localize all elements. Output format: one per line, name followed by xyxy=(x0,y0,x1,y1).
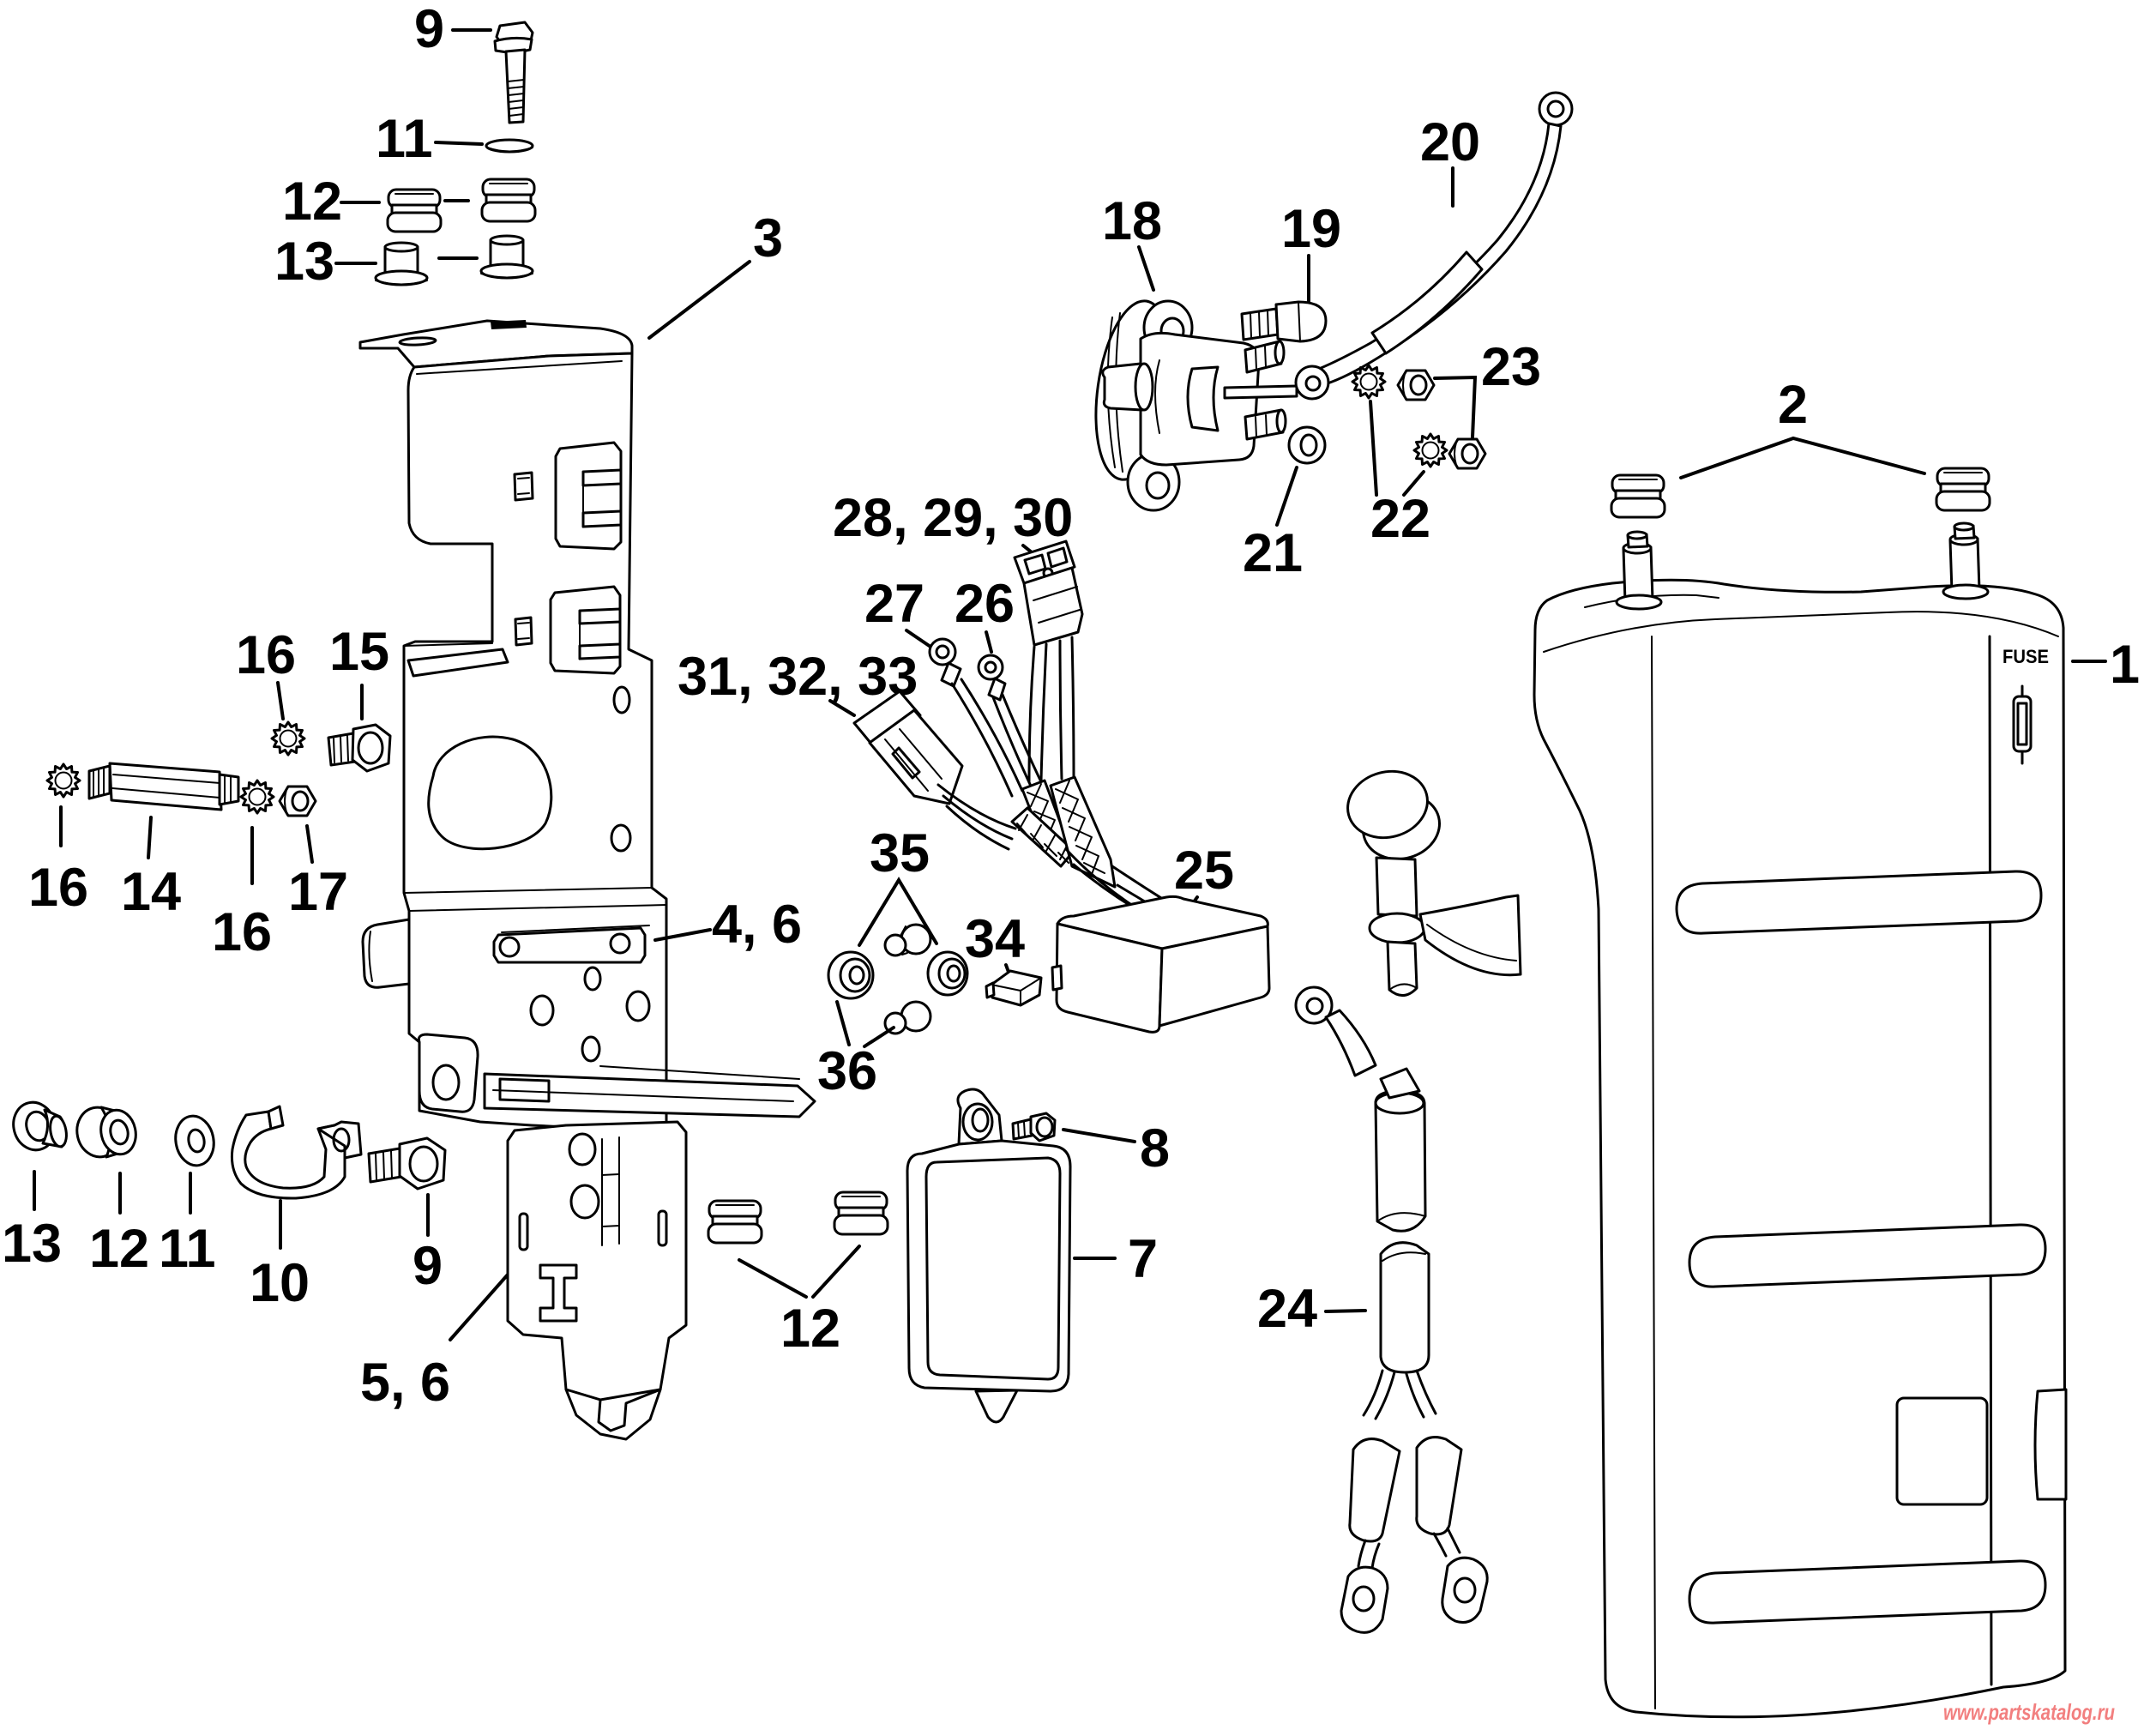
svg-text:12: 12 xyxy=(89,1219,149,1279)
svg-text:10: 10 xyxy=(250,1253,310,1313)
svg-text:13: 13 xyxy=(274,232,334,292)
svg-text:FUSE: FUSE xyxy=(2002,646,2049,667)
svg-text:20: 20 xyxy=(1420,112,1480,172)
svg-text:3: 3 xyxy=(753,208,783,268)
svg-text:8: 8 xyxy=(1140,1118,1170,1178)
svg-text:1: 1 xyxy=(2110,635,2140,695)
svg-text:12: 12 xyxy=(282,172,342,232)
svg-text:www.partskatalog.ru: www.partskatalog.ru xyxy=(1943,1699,2115,1725)
svg-text:35: 35 xyxy=(870,823,930,883)
svg-text:34: 34 xyxy=(965,909,1025,969)
svg-text:16: 16 xyxy=(236,625,296,685)
svg-text:26: 26 xyxy=(955,574,1015,634)
svg-text:18: 18 xyxy=(1102,191,1162,251)
svg-text:28, 29, 30: 28, 29, 30 xyxy=(833,488,1073,548)
svg-text:19: 19 xyxy=(1281,199,1341,259)
svg-text:17: 17 xyxy=(288,862,348,922)
svg-text:21: 21 xyxy=(1243,523,1303,583)
svg-text:11: 11 xyxy=(159,1219,216,1279)
svg-text:7: 7 xyxy=(1128,1229,1158,1289)
svg-text:12: 12 xyxy=(780,1299,840,1359)
svg-text:11: 11 xyxy=(376,109,433,169)
svg-text:22: 22 xyxy=(1370,489,1430,549)
svg-text:16: 16 xyxy=(28,858,88,918)
svg-text:15: 15 xyxy=(329,622,389,682)
svg-text:14: 14 xyxy=(121,862,181,922)
svg-text:2: 2 xyxy=(1778,375,1808,435)
svg-text:4, 6: 4, 6 xyxy=(712,895,802,955)
svg-text:5, 6: 5, 6 xyxy=(360,1353,450,1413)
svg-text:9: 9 xyxy=(414,0,444,59)
svg-text:31, 32, 33: 31, 32, 33 xyxy=(678,647,918,707)
svg-text:24: 24 xyxy=(1257,1279,1317,1339)
svg-text:13: 13 xyxy=(2,1214,62,1274)
svg-text:27: 27 xyxy=(864,574,924,634)
svg-text:9: 9 xyxy=(413,1236,443,1296)
svg-text:25: 25 xyxy=(1174,841,1234,901)
svg-text:23: 23 xyxy=(1481,337,1541,397)
svg-text:36: 36 xyxy=(817,1041,877,1101)
svg-text:16: 16 xyxy=(212,902,272,962)
